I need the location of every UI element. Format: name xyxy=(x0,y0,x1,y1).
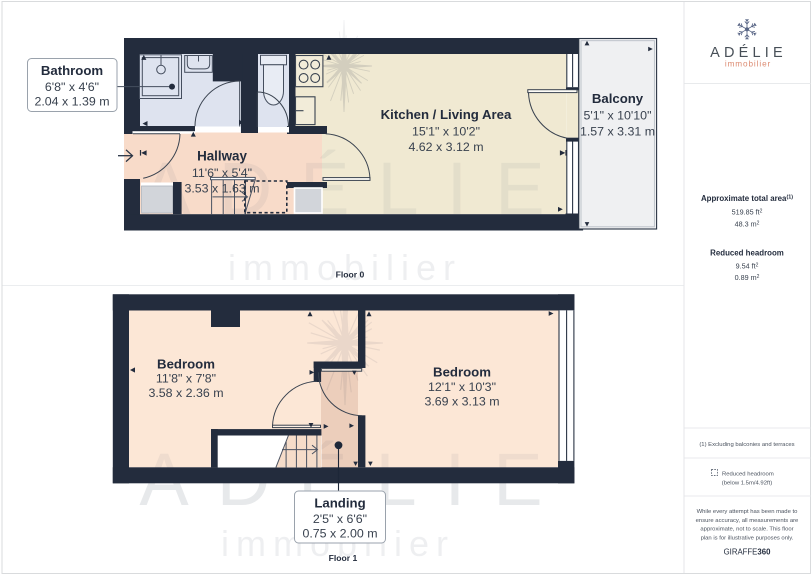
svg-text:Approximate total area(1): Approximate total area(1) xyxy=(701,194,793,203)
svg-text:immobilier: immobilier xyxy=(725,60,771,69)
svg-text:approximate, not to scale. Thi: approximate, not to scale. This floor xyxy=(700,527,793,533)
svg-text:GIRAFFE360: GIRAFFE360 xyxy=(724,548,771,557)
svg-text:plan is for illustrative purpo: plan is for illustrative purposes only. xyxy=(701,535,794,541)
svg-text:While every attempt has been m: While every attempt has been made to xyxy=(697,509,799,515)
svg-text:Bedroom: Bedroom xyxy=(157,357,215,372)
svg-text:48.3 m2: 48.3 m2 xyxy=(735,220,760,229)
svg-text:immobilier: immobilier xyxy=(228,247,462,288)
svg-text:1.57 x 3.31 m: 1.57 x 3.31 m xyxy=(580,125,655,139)
svg-text:0.89 m2: 0.89 m2 xyxy=(735,273,760,282)
svg-text:Kitchen / Living Area: Kitchen / Living Area xyxy=(381,107,512,122)
svg-text:Bathroom: Bathroom xyxy=(41,63,103,78)
svg-text:3.53 x 1.63 m: 3.53 x 1.63 m xyxy=(184,182,259,196)
svg-text:Landing: Landing xyxy=(314,496,365,511)
svg-text:Reduced headroom: Reduced headroom xyxy=(722,472,774,478)
svg-text:3.69 x 3.13 m: 3.69 x 3.13 m xyxy=(424,395,499,409)
svg-text:11'8" x 7'8": 11'8" x 7'8" xyxy=(156,372,216,386)
svg-text:519.85 ft2: 519.85 ft2 xyxy=(732,208,763,217)
svg-text:9.54 ft2: 9.54 ft2 xyxy=(736,262,759,271)
svg-text:15'1" x 10'2": 15'1" x 10'2" xyxy=(412,125,480,139)
svg-text:Floor 1: Floor 1 xyxy=(329,553,358,563)
svg-text:4.62 x 3.12 m: 4.62 x 3.12 m xyxy=(408,140,483,154)
svg-text:Floor 0: Floor 0 xyxy=(336,270,365,280)
svg-text:Hallway: Hallway xyxy=(197,149,247,164)
svg-text:2.04 x 1.39 m: 2.04 x 1.39 m xyxy=(34,95,109,109)
svg-text:11'6" x 5'4": 11'6" x 5'4" xyxy=(192,166,252,180)
svg-text:Bedroom: Bedroom xyxy=(433,365,491,380)
svg-text:6'8" x 4'6": 6'8" x 4'6" xyxy=(45,80,99,94)
svg-text:Reduced headroom: Reduced headroom xyxy=(710,249,784,258)
svg-text:ensure accuracy, all measureme: ensure accuracy, all measurements are xyxy=(696,518,799,524)
svg-text:5'1" x 10'10": 5'1" x 10'10" xyxy=(584,109,652,123)
svg-text:ADÉLIE: ADÉLIE xyxy=(710,44,787,61)
svg-text:(1) Excluding balconies and te: (1) Excluding balconies and terraces xyxy=(699,442,794,448)
svg-text:Balcony: Balcony xyxy=(592,91,644,106)
svg-text:(below 1.5m/4.92ft): (below 1.5m/4.92ft) xyxy=(722,481,772,487)
svg-text:0.75 x 2.00 m: 0.75 x 2.00 m xyxy=(302,527,377,541)
svg-text:12'1" x 10'3": 12'1" x 10'3" xyxy=(428,380,496,394)
svg-text:3.58 x 2.36 m: 3.58 x 2.36 m xyxy=(148,386,223,400)
svg-text:2'5" x 6'6": 2'5" x 6'6" xyxy=(313,512,367,526)
